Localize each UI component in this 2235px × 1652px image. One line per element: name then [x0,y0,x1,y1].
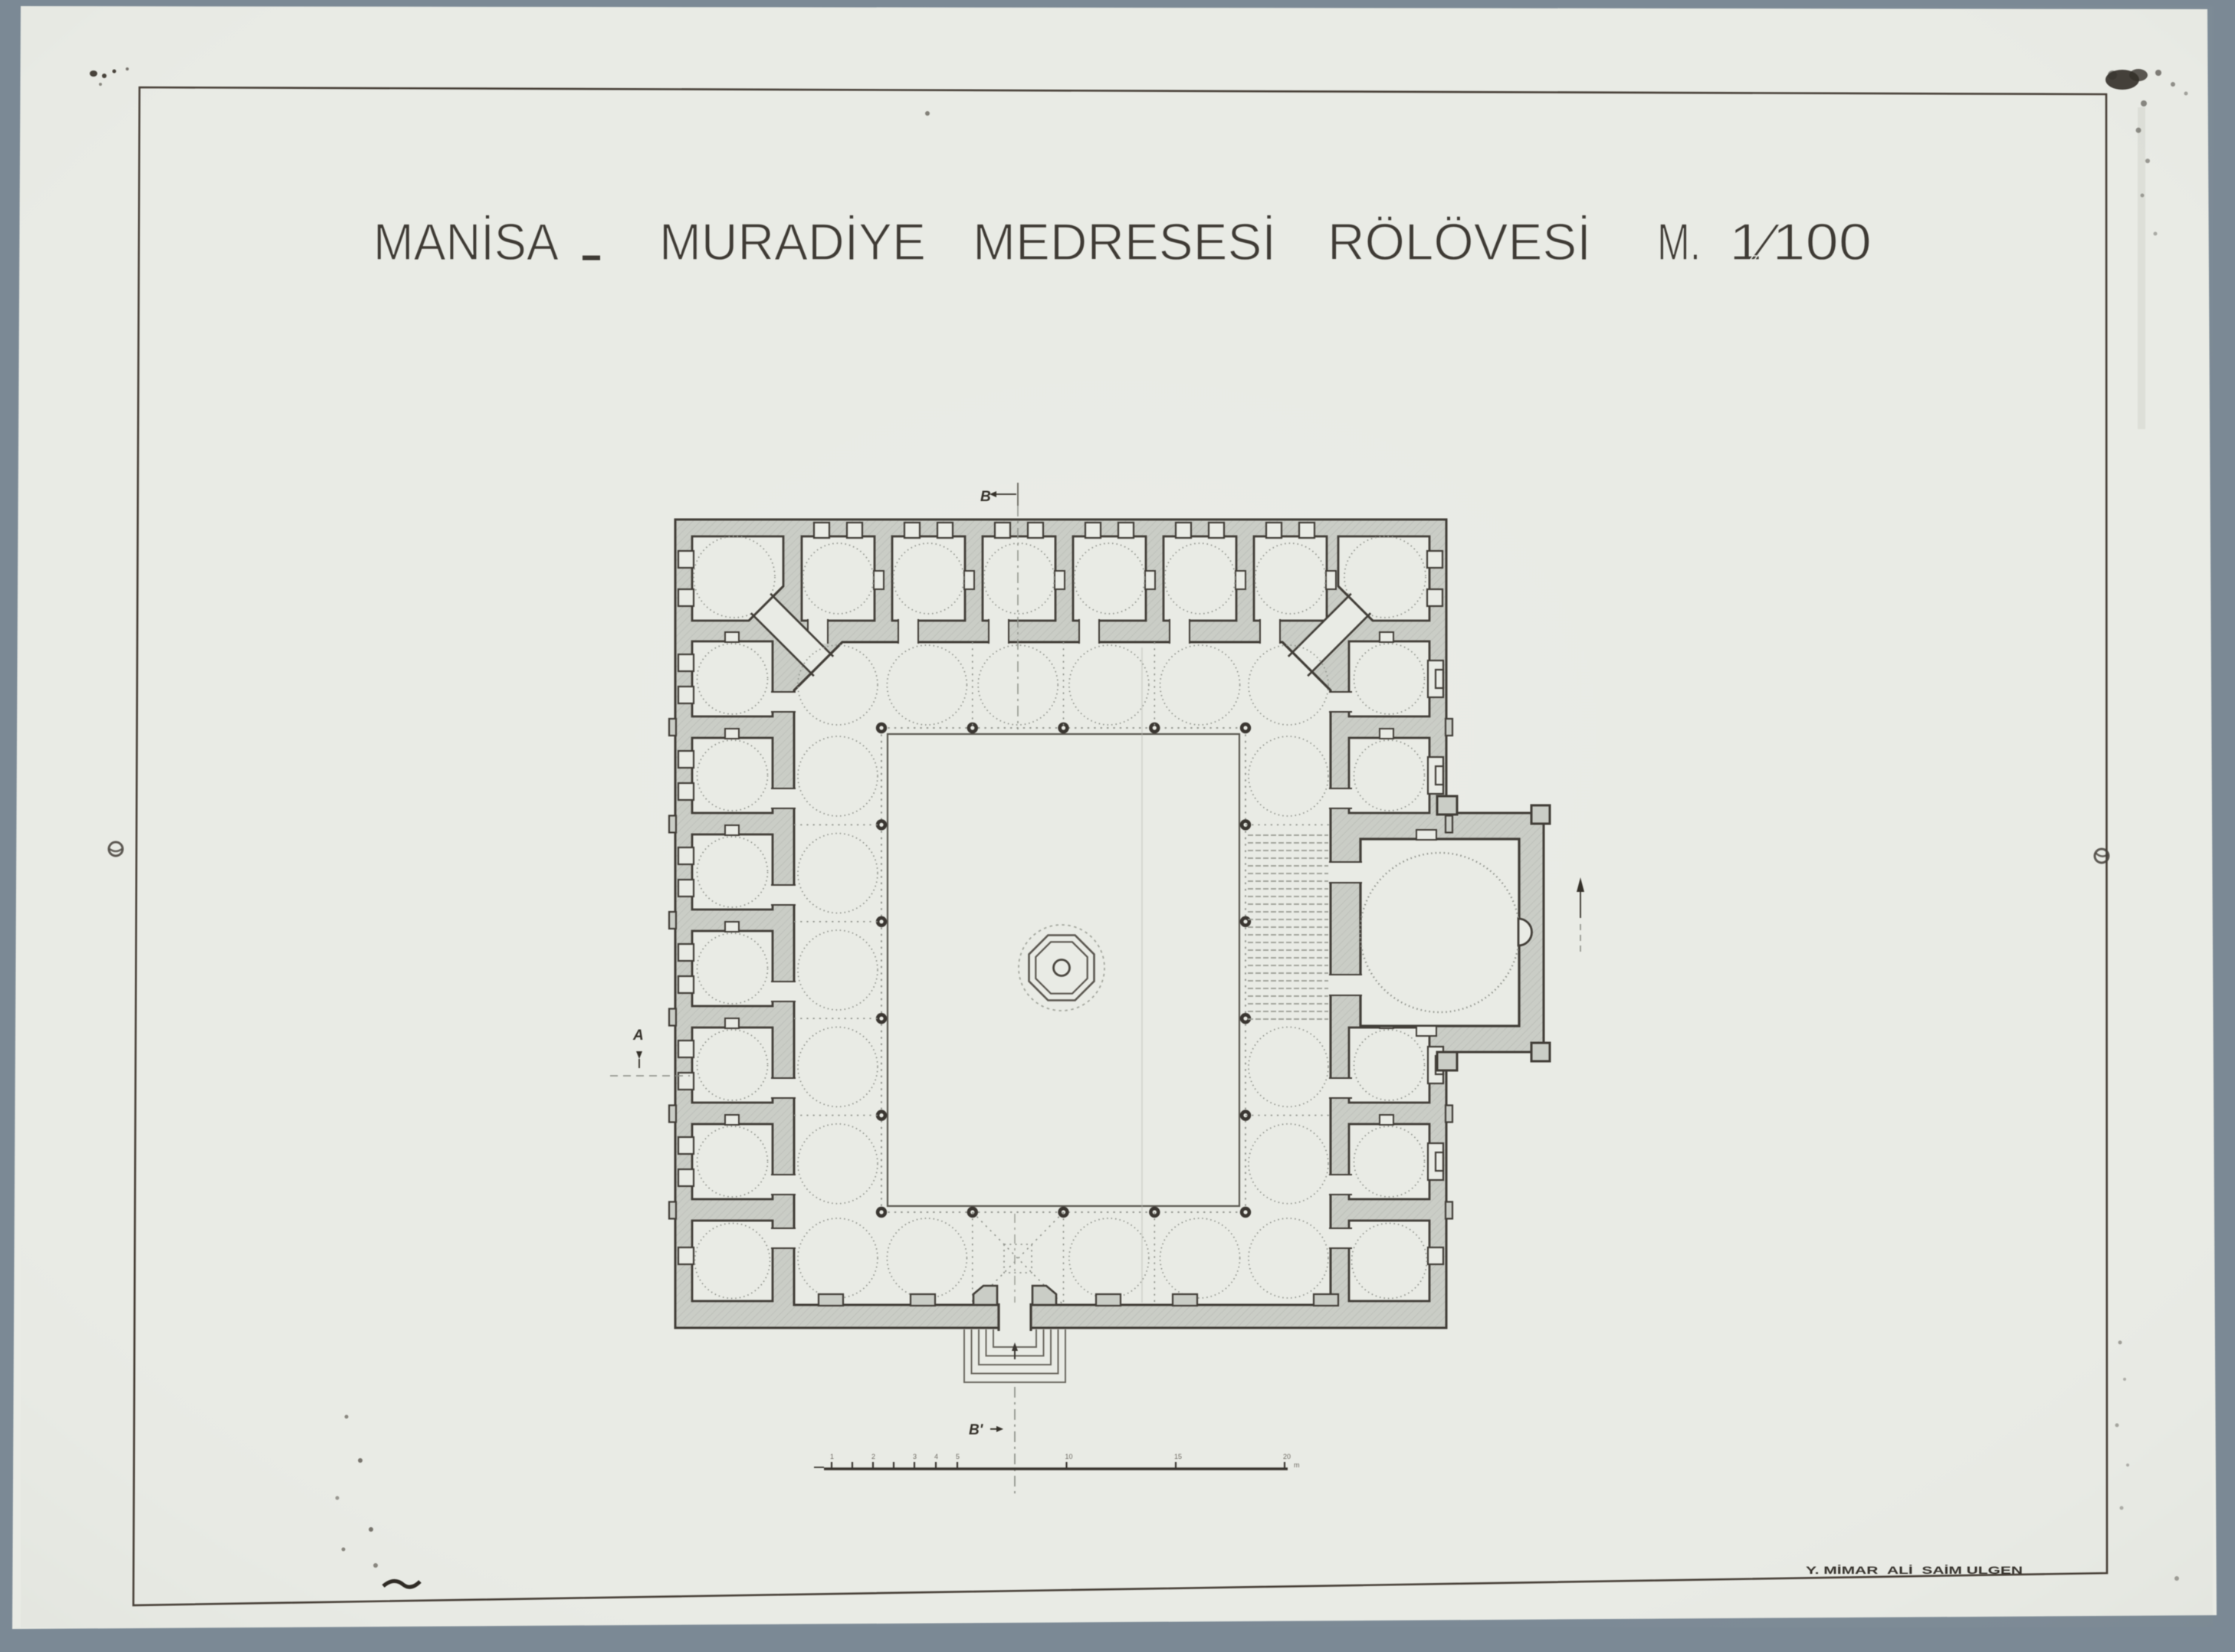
svg-text:20: 20 [1283,1453,1291,1460]
svg-text:m: m [1294,1461,1300,1469]
svg-text:5: 5 [956,1453,960,1460]
svg-text:A: A [632,1028,644,1044]
svg-text:1∕100: 1∕100 [1729,214,1872,271]
svg-text:MANİSA: MANİSA [373,214,559,271]
svg-text:B': B' [969,1422,984,1438]
svg-text:MURADİYE: MURADİYE [659,214,926,271]
svg-text:10: 10 [1065,1453,1073,1460]
svg-text:3: 3 [913,1453,917,1460]
svg-text:4: 4 [934,1453,938,1460]
svg-text:RÖLÖVESİ: RÖLÖVESİ [1328,214,1591,271]
svg-text:1: 1 [830,1453,834,1460]
svg-text:Y. MİMAR ALİ SAİM ULGEN: Y. MİMAR ALİ SAİM ULGEN [1806,1565,2023,1576]
svg-text:2: 2 [871,1453,875,1460]
svg-text:M.: M. [1657,214,1701,271]
svg-text:B: B [980,489,991,505]
svg-text:MEDRESESİ: MEDRESESİ [973,214,1276,271]
svg-text:15: 15 [1174,1453,1182,1460]
